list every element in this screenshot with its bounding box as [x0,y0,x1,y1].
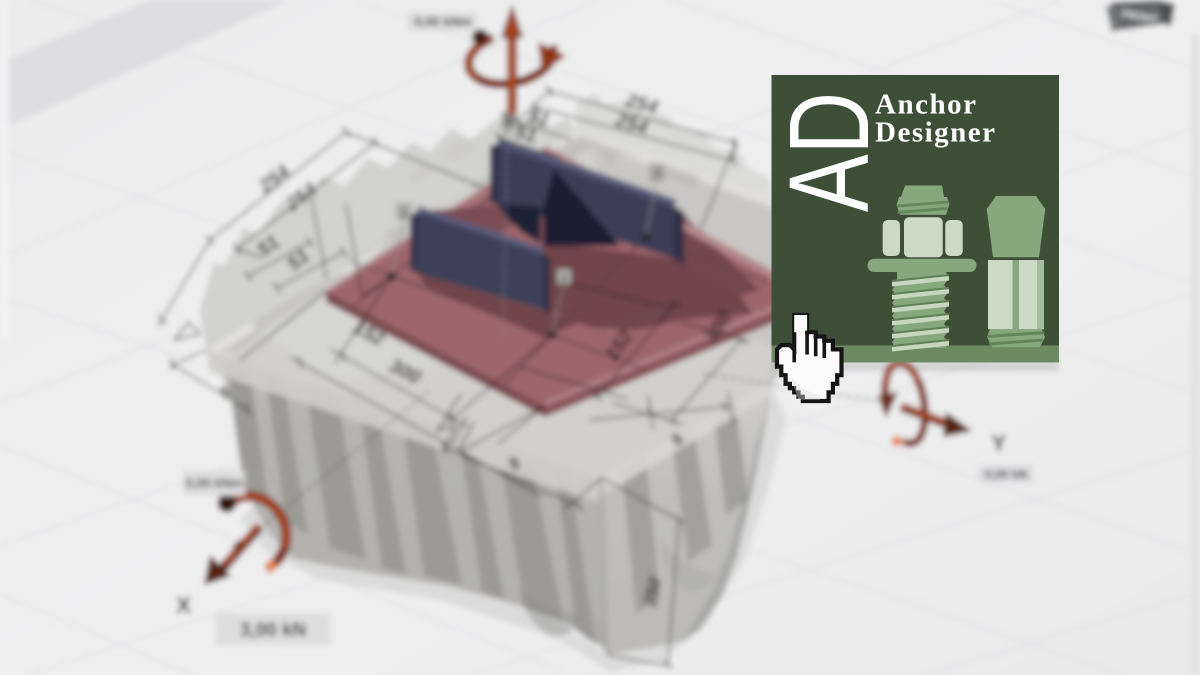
svg-text:3,00 kN: 3,00 kN [240,620,307,641]
svg-text:Designer: Designer [875,117,997,149]
svg-text:4: 4 [506,114,513,128]
svg-text:0,00 kN: 0,00 kN [985,467,1027,481]
svg-text:3: 3 [654,167,661,181]
svg-text:X: X [176,592,192,618]
svg-text:AD: AD [766,92,892,212]
svg-text:1: 1 [401,206,408,220]
svg-text:Y: Y [991,430,1006,456]
svg-text:0,00 kNm: 0,00 kNm [185,476,242,491]
svg-text:2: 2 [561,271,568,285]
svg-text:0,00 kNm: 0,00 kNm [414,14,471,29]
